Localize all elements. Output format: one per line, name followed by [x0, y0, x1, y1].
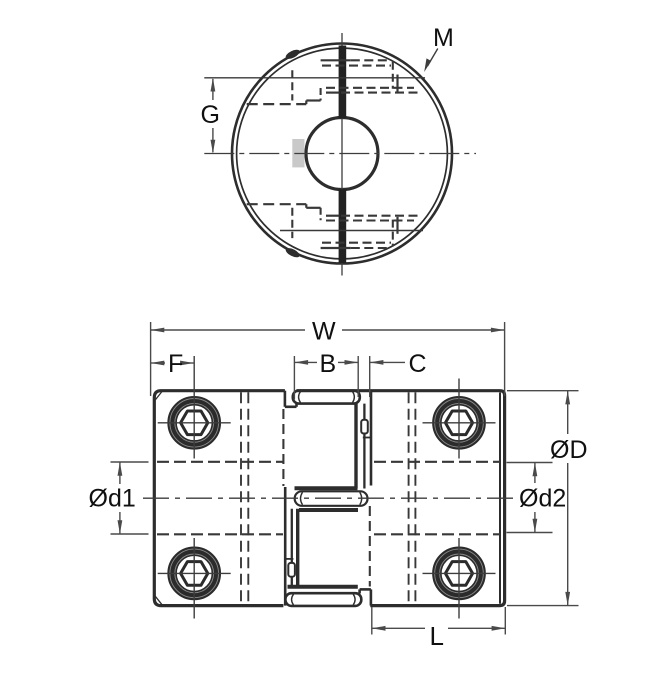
svg-text:F: F — [168, 350, 183, 378]
svg-text:B: B — [320, 350, 337, 378]
svg-text:Ød2: Ød2 — [519, 485, 566, 513]
svg-text:M: M — [433, 24, 454, 52]
svg-text:Ød1: Ød1 — [89, 485, 136, 513]
svg-text:G: G — [201, 101, 220, 129]
svg-text:ØD: ØD — [550, 436, 588, 464]
svg-text:C: C — [409, 350, 427, 378]
svg-text:W: W — [312, 318, 336, 346]
svg-text:L: L — [430, 621, 444, 651]
